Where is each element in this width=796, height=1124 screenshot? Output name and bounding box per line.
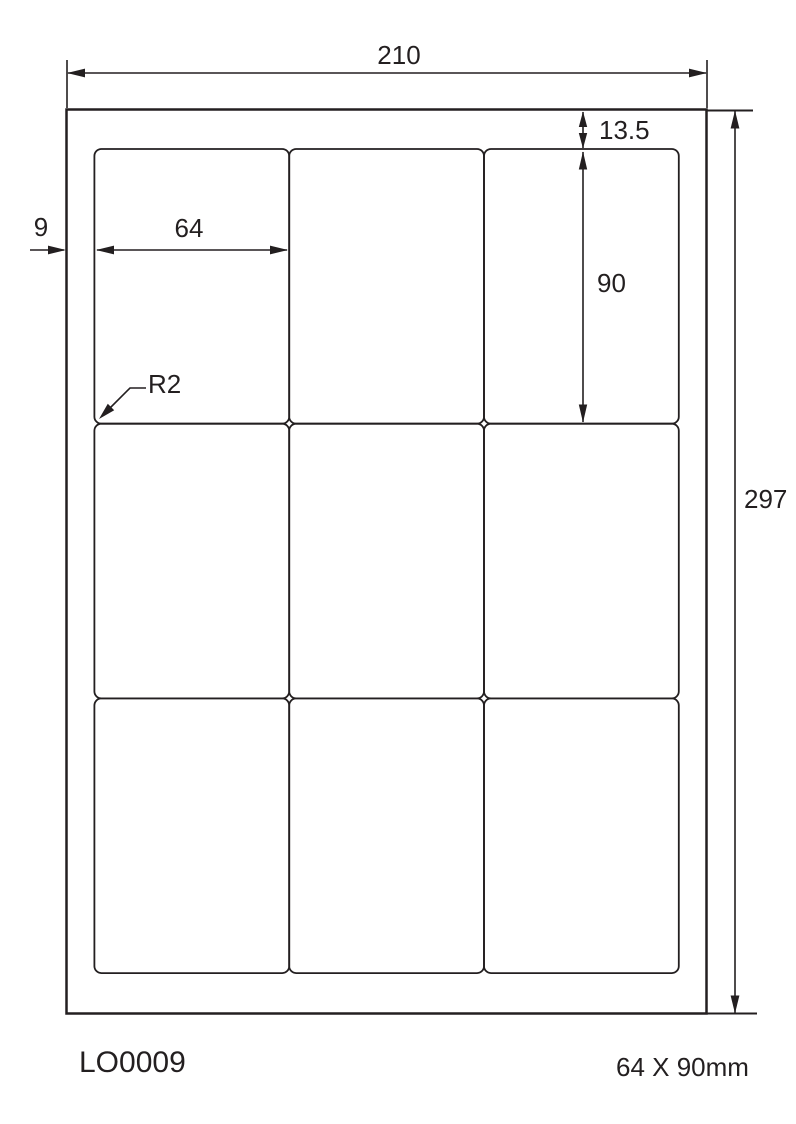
label-cell bbox=[94, 424, 289, 699]
label-cell bbox=[484, 149, 679, 424]
arrowhead-down-icon bbox=[579, 133, 587, 149]
dim-page-height bbox=[707, 111, 757, 1014]
dim-label-width bbox=[96, 246, 288, 255]
arrowhead-right-icon bbox=[48, 246, 66, 255]
dim-value-page-width: 210 bbox=[377, 42, 420, 68]
product-code: LO0009 bbox=[79, 1048, 186, 1078]
arrowhead-left-icon bbox=[67, 69, 85, 78]
arrowhead-up-icon bbox=[579, 112, 587, 128]
arrowhead-down-icon bbox=[579, 405, 587, 423]
label-cell bbox=[94, 149, 289, 424]
arrowhead-left-icon bbox=[96, 246, 114, 255]
dim-value-label-width: 64 bbox=[175, 215, 204, 241]
label-cell bbox=[289, 698, 484, 973]
dim-value-top-margin: 13.5 bbox=[599, 117, 650, 143]
dim-value-left-margin: 9 bbox=[34, 214, 48, 240]
dim-value-label-height: 90 bbox=[597, 270, 626, 296]
leader-corner-radius bbox=[99, 388, 146, 419]
dim-top-margin bbox=[579, 112, 587, 149]
dim-label-height bbox=[579, 152, 587, 423]
dim-value-page-height: 297 bbox=[744, 486, 787, 512]
label-cell bbox=[289, 149, 484, 424]
arrowhead-down-icon bbox=[731, 996, 740, 1014]
label-cell bbox=[289, 424, 484, 699]
label-grid bbox=[94, 149, 678, 973]
label-cell bbox=[94, 698, 289, 973]
arrowhead-up-icon bbox=[731, 111, 740, 129]
label-cell bbox=[484, 424, 679, 699]
arrowhead-up-icon bbox=[579, 152, 587, 170]
diagram-drawing bbox=[0, 0, 796, 1124]
label-cell bbox=[484, 698, 679, 973]
arrowhead-right-icon bbox=[270, 246, 288, 255]
label-sheet-dimension-diagram: 210 297 13.5 90 64 9 R2 LO0009 64 X 90mm bbox=[0, 0, 796, 1124]
label-size-caption: 64 X 90mm bbox=[616, 1054, 749, 1080]
page-outline bbox=[67, 110, 707, 1014]
dim-value-corner-radius: R2 bbox=[148, 371, 181, 397]
dim-left-margin bbox=[30, 246, 66, 255]
arrowhead-right-icon bbox=[689, 69, 707, 78]
